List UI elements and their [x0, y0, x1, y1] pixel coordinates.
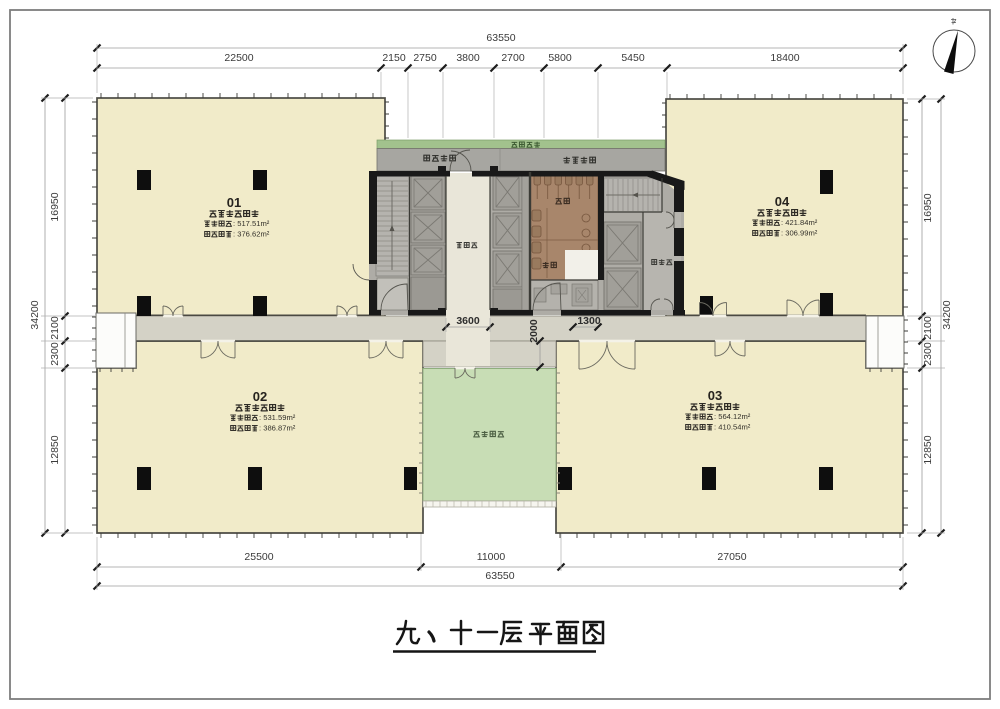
svg-text:2700: 2700 [501, 52, 525, 64]
svg-text:16950: 16950 [922, 193, 934, 222]
svg-text:5800: 5800 [548, 52, 572, 64]
svg-text:2100: 2100 [922, 316, 934, 340]
svg-text:2300: 2300 [922, 342, 934, 366]
svg-text:2100: 2100 [49, 316, 61, 340]
svg-text:16950: 16950 [49, 192, 61, 221]
svg-text:2150: 2150 [382, 52, 406, 64]
svg-text:11000: 11000 [477, 551, 506, 563]
svg-text:22500: 22500 [224, 52, 253, 64]
svg-text:2300: 2300 [49, 342, 61, 366]
svg-text:18400: 18400 [770, 52, 799, 64]
svg-text:03: 03 [708, 388, 722, 403]
svg-text:: 410.54m²: : 410.54m² [714, 423, 751, 432]
svg-text:04: 04 [775, 194, 790, 209]
svg-text:: 531.59m²: : 531.59m² [259, 413, 296, 422]
svg-text:2000: 2000 [528, 319, 540, 343]
svg-text:25500: 25500 [244, 551, 273, 563]
svg-text:3600: 3600 [456, 315, 480, 327]
svg-text:12850: 12850 [49, 435, 61, 464]
svg-text:: 564.12m²: : 564.12m² [714, 412, 751, 421]
svg-text:2750: 2750 [413, 52, 437, 64]
svg-text:34200: 34200 [29, 300, 41, 329]
svg-text:: 306.99m²: : 306.99m² [781, 229, 818, 238]
svg-text:: 517.51m²: : 517.51m² [233, 219, 270, 228]
svg-text:63550: 63550 [486, 32, 515, 44]
svg-text:1300: 1300 [577, 315, 601, 327]
svg-text:12850: 12850 [922, 435, 934, 464]
svg-text:: 421.84m²: : 421.84m² [781, 218, 818, 227]
svg-text:3800: 3800 [456, 52, 480, 64]
svg-text:: 386.87m²: : 386.87m² [259, 424, 296, 433]
svg-text:27050: 27050 [717, 551, 746, 563]
svg-text:: 376.62m²: : 376.62m² [233, 230, 270, 239]
svg-text:63550: 63550 [485, 570, 514, 582]
svg-text:34200: 34200 [941, 300, 953, 329]
svg-text:01: 01 [227, 195, 241, 210]
svg-text:02: 02 [253, 389, 267, 404]
svg-text:5450: 5450 [621, 52, 645, 64]
